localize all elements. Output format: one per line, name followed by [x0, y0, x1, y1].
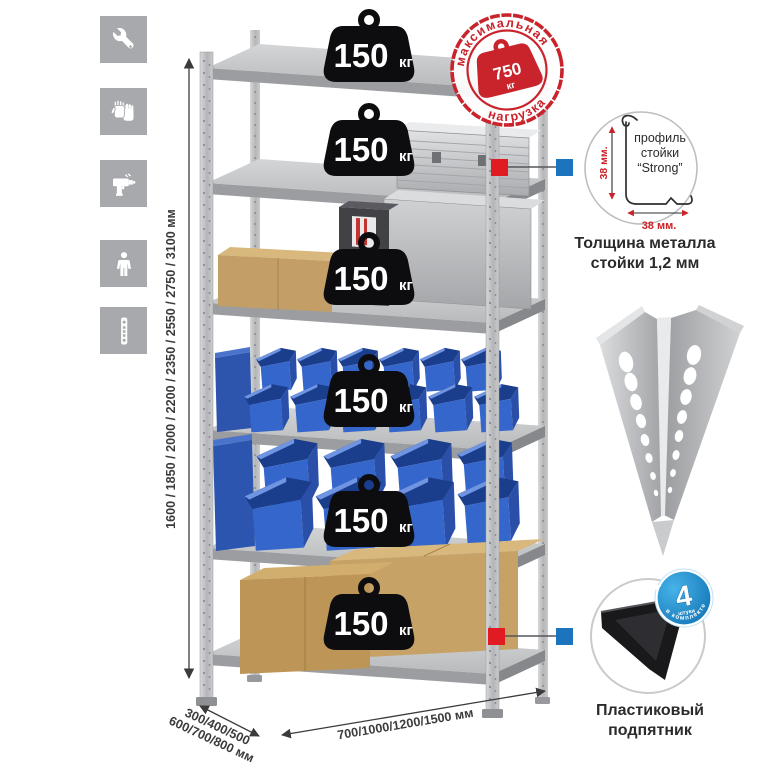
aluminum-case [397, 122, 541, 196]
svg-text:38 мм.: 38 мм. [598, 146, 610, 179]
svg-text:150: 150 [333, 502, 388, 539]
svg-text:кг: кг [399, 399, 413, 416]
product-infographic: 150 кг 150 кг 150 кг 150 кг 150 кг [0, 0, 765, 765]
svg-text:профиль: профиль [634, 131, 686, 145]
metal-angle-post [596, 305, 744, 556]
svg-text:кг: кг [399, 277, 413, 294]
svg-text:кг: кг [399, 622, 413, 639]
foot-caption: Пластиковый подпятник [560, 701, 740, 742]
svg-text:150: 150 [333, 131, 388, 168]
rack-illustration: 150 кг 150 кг 150 кг 150 кг 150 кг [0, 0, 765, 765]
svg-text:150: 150 [333, 605, 388, 642]
svg-text:700/1000/1200/1500 мм: 700/1000/1200/1500 мм [336, 706, 474, 743]
cardboard-box [218, 247, 344, 312]
svg-text:150: 150 [333, 382, 388, 419]
profile-cross-section: 38 мм. 38 мм. профиль стойки “Strong” [585, 112, 697, 232]
svg-text:кг: кг [399, 148, 413, 165]
depth-dimension: 300/400/500 600/700/800 мм [167, 701, 262, 765]
callout-profile [491, 159, 573, 176]
svg-text:кг: кг [399, 54, 413, 71]
profile-caption: Толщина металла стойки 1,2 мм [555, 234, 735, 275]
shelf-load-weight: 150 кг [328, 106, 413, 172]
plastic-foot: 4 штуки в комплекте [591, 564, 718, 693]
svg-text:кг: кг [399, 519, 413, 536]
svg-text:38 мм.: 38 мм. [642, 220, 677, 232]
svg-text:150: 150 [333, 260, 388, 297]
shelf-load-weight: 150 кг [328, 12, 413, 78]
callout-foot [488, 628, 573, 645]
max-load-stamp: максимальная нагрузка 750 кг [440, 3, 573, 136]
height-dimension: 1600 / 1850 / 2000 / 2200 / 2350 / 2550 … [164, 59, 189, 678]
svg-text:“Strong”: “Strong” [637, 161, 682, 175]
svg-text:стойки: стойки [641, 146, 679, 160]
svg-text:150: 150 [333, 37, 388, 74]
svg-text:1600 / 1850 / 2000 / 2200 / 23: 1600 / 1850 / 2000 / 2200 / 2350 / 2550 … [164, 209, 178, 529]
width-dimension: 700/1000/1200/1500 мм [282, 691, 545, 742]
